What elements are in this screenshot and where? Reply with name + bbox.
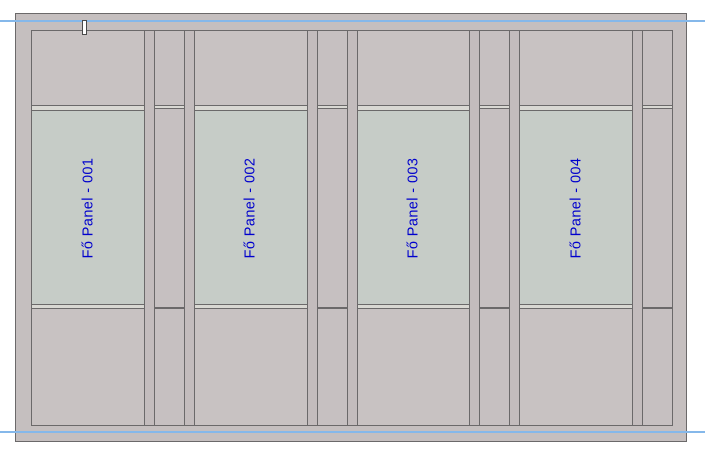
glass-panel-1[interactable]: Fő Panel - 001 xyxy=(32,111,144,304)
panel-label-4[interactable]: Fő Panel - 004 xyxy=(568,157,584,258)
panel-label-2[interactable]: Fő Panel - 002 xyxy=(243,157,259,258)
narrow-mid-section xyxy=(155,109,184,307)
narrow-top-section xyxy=(643,31,672,105)
panel-unit-4[interactable]: Fő Panel - 004 xyxy=(520,31,632,425)
narrow-bottom-section xyxy=(480,309,509,425)
narrow-bottom-section xyxy=(643,309,672,425)
narrow-bottom-section xyxy=(155,309,184,425)
panel-top-section xyxy=(520,31,632,105)
narrow-panel-3[interactable] xyxy=(480,31,509,425)
elevation-view-canvas: Fő Panel - 001 Fő Panel - 002 xyxy=(0,0,705,453)
panel-top-section xyxy=(195,31,307,105)
glass-panel-2[interactable]: Fő Panel - 002 xyxy=(195,111,307,304)
narrow-bottom-section xyxy=(318,309,347,425)
panel-bottom-section xyxy=(520,309,632,425)
panel-label-1[interactable]: Fő Panel - 001 xyxy=(80,157,96,258)
narrow-top-section xyxy=(155,31,184,105)
narrow-mid-section xyxy=(318,109,347,307)
panel-unit-2[interactable]: Fő Panel - 002 xyxy=(195,31,307,425)
narrow-mid-section xyxy=(480,109,509,307)
narrow-mid-section xyxy=(643,109,672,307)
narrow-top-section xyxy=(318,31,347,105)
panel-bottom-section xyxy=(32,309,144,425)
glass-panel-4[interactable]: Fő Panel - 004 xyxy=(520,111,632,304)
panel-label-3[interactable]: Fő Panel - 003 xyxy=(405,157,421,258)
panel-area: Fő Panel - 001 Fő Panel - 002 xyxy=(31,30,673,426)
panel-top-section xyxy=(358,31,470,105)
glass-panel-3[interactable]: Fő Panel - 003 xyxy=(358,111,470,304)
panel-bottom-section xyxy=(195,309,307,425)
vertical-mullion[interactable] xyxy=(632,31,643,425)
vertical-mullion[interactable] xyxy=(184,31,195,425)
panel-top-section xyxy=(32,31,144,105)
vertical-mullion[interactable] xyxy=(144,31,155,425)
panel-bottom-section xyxy=(358,309,470,425)
grid-tick-marker[interactable] xyxy=(82,20,87,35)
panel-unit-1[interactable]: Fő Panel - 001 xyxy=(32,31,144,425)
narrow-top-section xyxy=(480,31,509,105)
narrow-panel-1[interactable] xyxy=(155,31,184,425)
vertical-mullion[interactable] xyxy=(509,31,520,425)
vertical-mullion[interactable] xyxy=(307,31,318,425)
narrow-panel-4[interactable] xyxy=(643,31,672,425)
narrow-panel-2[interactable] xyxy=(318,31,347,425)
panel-unit-3[interactable]: Fő Panel - 003 xyxy=(358,31,470,425)
curtain-wall-frame[interactable]: Fő Panel - 001 Fő Panel - 002 xyxy=(15,13,687,442)
vertical-mullion[interactable] xyxy=(469,31,480,425)
reference-level-line-bottom[interactable] xyxy=(0,431,705,433)
vertical-mullion[interactable] xyxy=(347,31,358,425)
reference-level-line-top[interactable] xyxy=(0,20,705,22)
